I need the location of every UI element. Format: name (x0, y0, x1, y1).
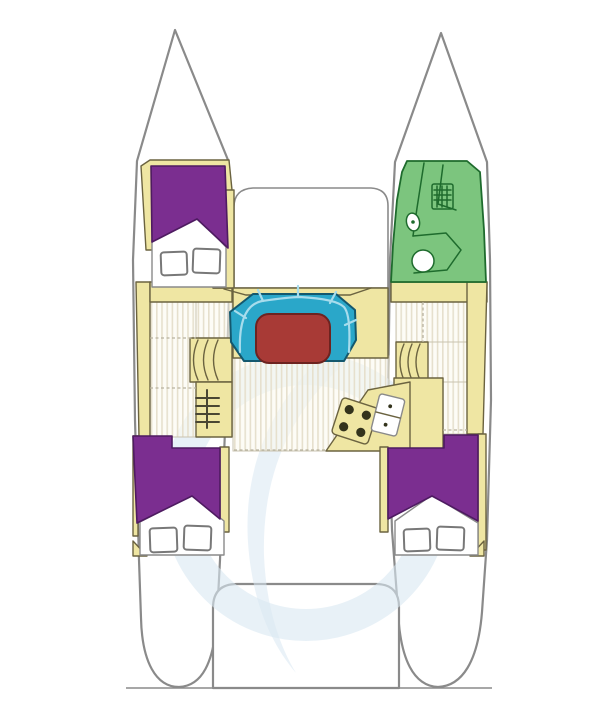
starboard-companionway-steps (396, 342, 428, 382)
catamaran-deck-plan (0, 0, 600, 712)
starboard-hull-floor-mid (428, 342, 467, 382)
deck-hatch (184, 526, 212, 551)
starboard-aft-inner-strip (380, 447, 388, 532)
head-floor (391, 161, 486, 282)
deck-plan-canvas (0, 0, 600, 712)
starboard-hull-floor-lower (443, 382, 467, 434)
starboard-head-compartment (391, 161, 486, 282)
port-forward-cabin (151, 166, 228, 287)
port-companionway-band (196, 382, 232, 437)
port-hull-floor (150, 302, 196, 437)
foredeck (234, 188, 388, 288)
starboard-hull-floor-upper (396, 302, 467, 342)
deck-hatch (437, 527, 465, 551)
deck-hatch (150, 528, 178, 553)
port-aft-cabin (133, 436, 224, 555)
washbasin-icon (412, 250, 434, 272)
deck-hatch (161, 252, 188, 276)
dining-table (256, 314, 330, 363)
port-gunwale-strip (136, 282, 150, 437)
deck-hatch (404, 529, 431, 552)
salon-settee (230, 286, 356, 363)
starboard-gunwale-strip (467, 282, 487, 434)
starboard-aft-cabin (388, 435, 478, 555)
port-hull-floor-upper (196, 302, 232, 338)
deck-hatch (193, 249, 221, 274)
starboard-aft-outer-strip (478, 434, 486, 550)
toilet-drain (411, 220, 415, 224)
